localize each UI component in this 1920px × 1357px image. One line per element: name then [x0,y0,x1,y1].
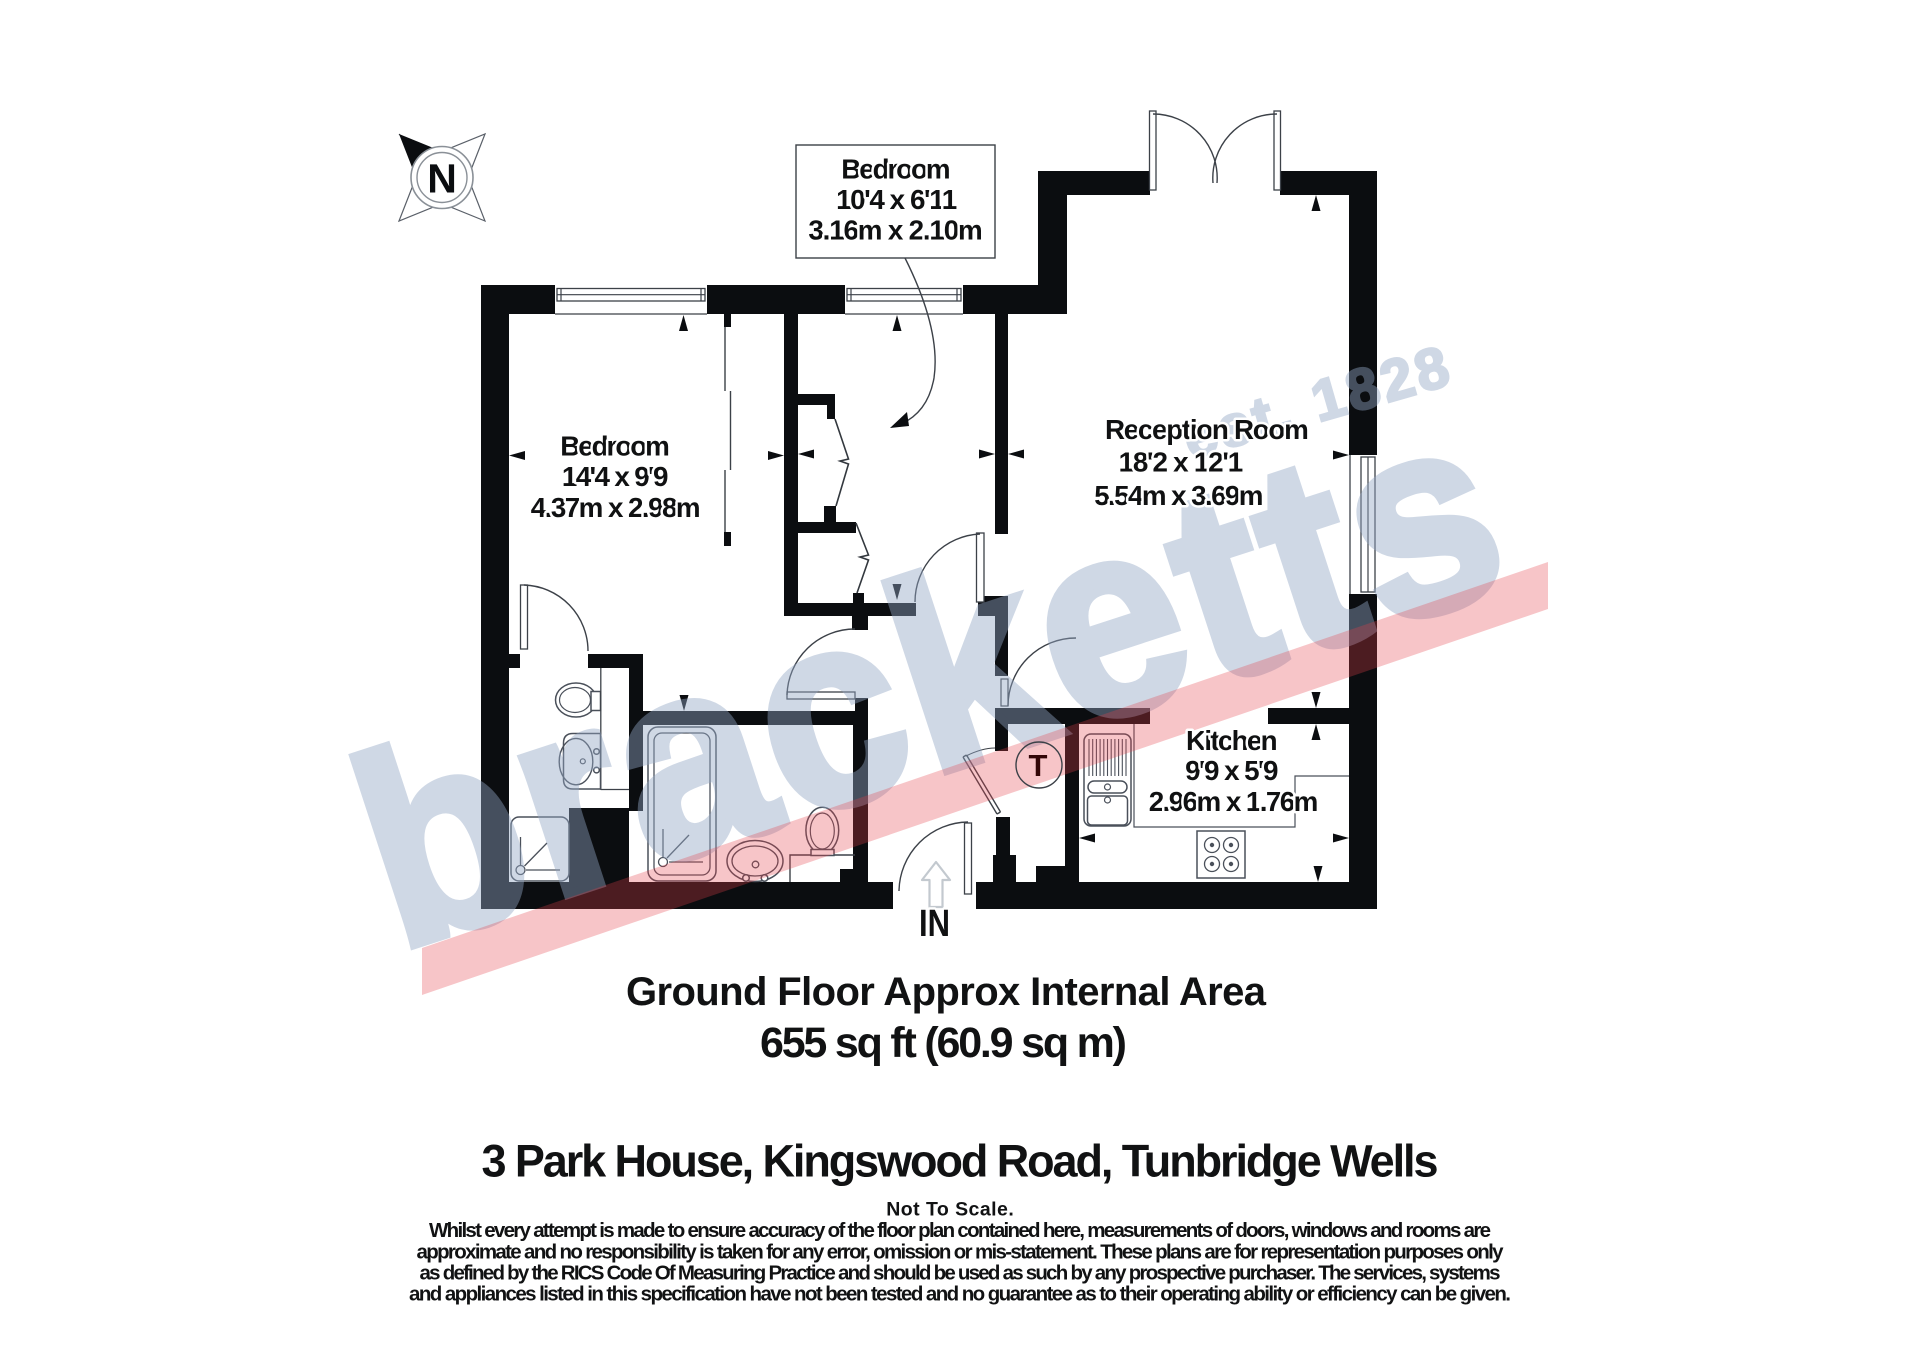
svg-text:5.54m x 3.69m: 5.54m x 3.69m [1094,480,1263,511]
svg-text:Not To Scale.: Not To Scale. [886,1198,1014,1220]
svg-text:Reception Room: Reception Room [1105,414,1309,445]
svg-text:IN: IN [919,903,950,945]
svg-text:N: N [427,156,457,202]
svg-text:10'4 x 6'11: 10'4 x 6'11 [836,184,957,215]
svg-text:and appliances listed in this: and appliances listed in this specificat… [409,1283,1511,1306]
svg-text:18'2 x 12'1: 18'2 x 12'1 [1119,447,1244,478]
svg-text:3 Park House, Kingswood Road,: 3 Park House, Kingswood Road, Tunbridge … [482,1136,1439,1187]
svg-text:Ground Floor Approx Internal A: Ground Floor Approx Internal Area [626,970,1267,1014]
svg-text:Bedroom: Bedroom [841,153,950,184]
svg-text:14'4 x 9'9: 14'4 x 9'9 [562,461,669,492]
svg-text:9'9 x 5'9: 9'9 x 5'9 [1185,755,1278,786]
svg-text:Kitchen: Kitchen [1186,725,1278,756]
svg-text:approximate and no responsibil: approximate and no responsibility is tak… [417,1241,1505,1264]
svg-text:4.37m x 2.98m: 4.37m x 2.98m [531,492,701,523]
svg-text:T: T [1029,748,1048,783]
svg-text:3.16m x 2.10m: 3.16m x 2.10m [808,215,982,246]
svg-text:2.96m x 1.76m: 2.96m x 1.76m [1149,786,1319,817]
svg-text:as defined by the RICS Code Of: as defined by the RICS Code Of Measuring… [420,1262,1501,1285]
svg-text:655 sq ft (60.9 sq m): 655 sq ft (60.9 sq m) [760,1019,1127,1067]
svg-text:Whilst every attempt is made t: Whilst every attempt is made to ensure a… [429,1219,1491,1242]
svg-text:Bedroom: Bedroom [560,431,670,462]
